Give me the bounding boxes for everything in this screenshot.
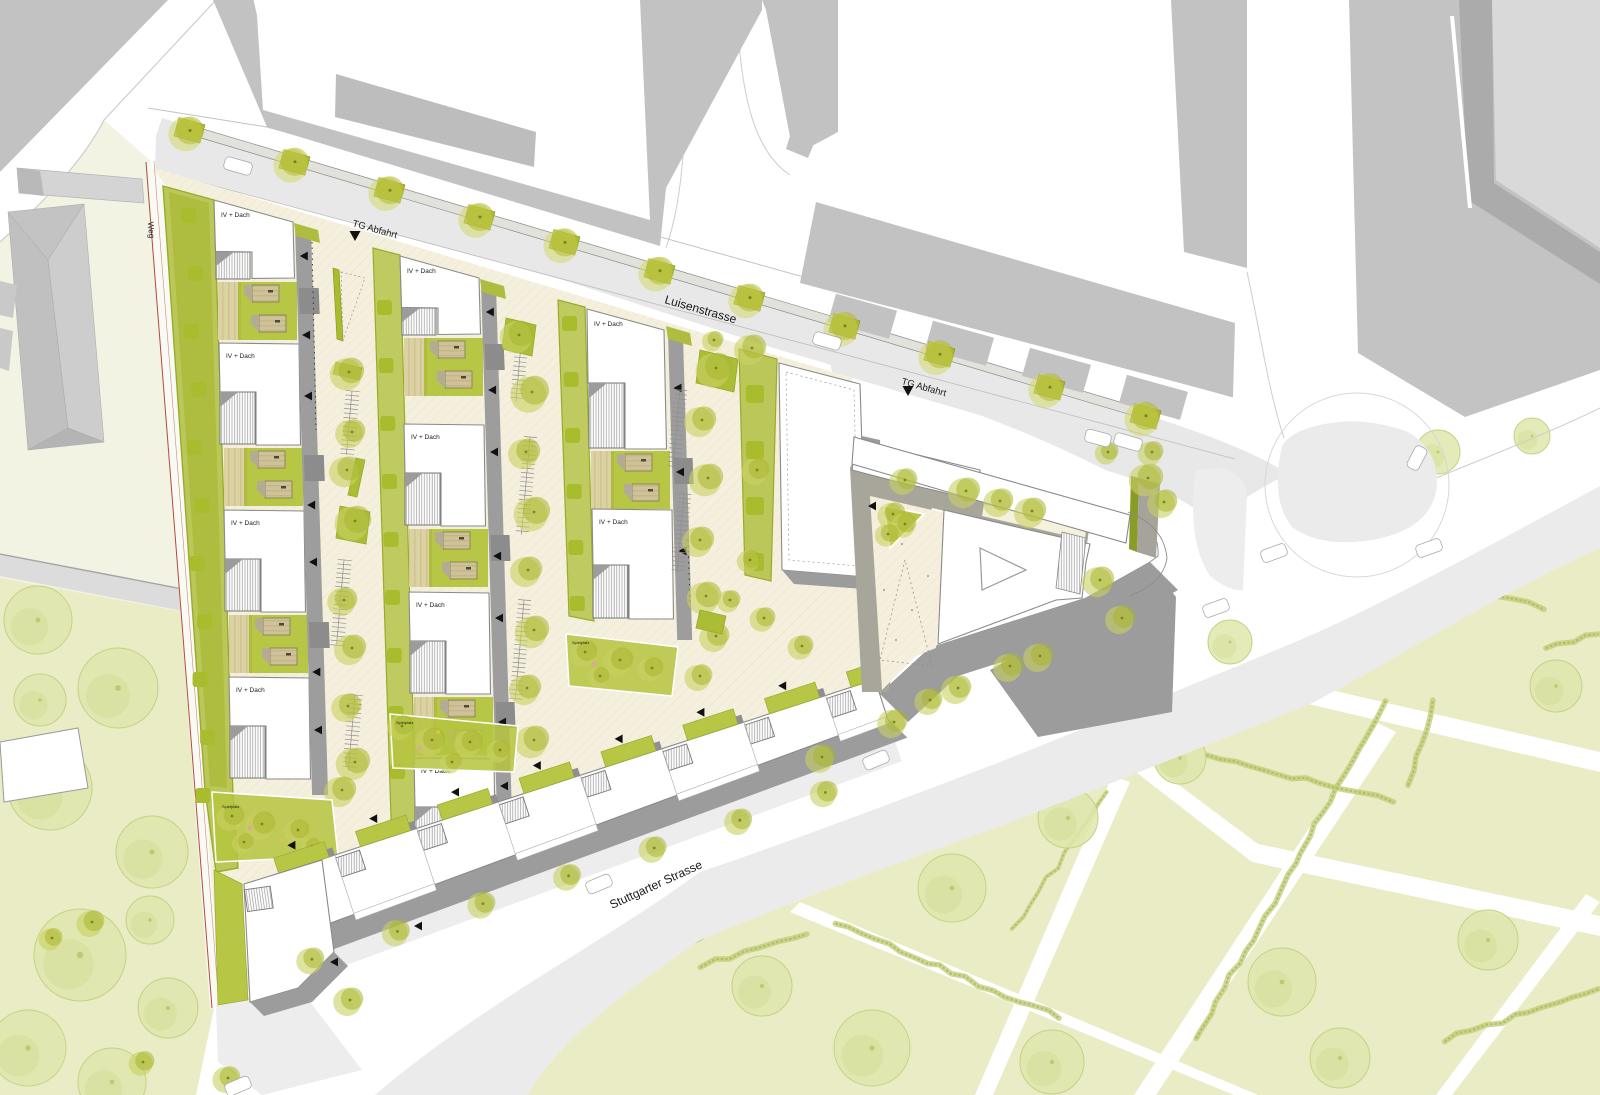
svg-text:IV + Dach: IV + Dach xyxy=(411,434,440,441)
svg-text:Spielplatz: Spielplatz xyxy=(396,720,413,725)
svg-text:IV + Dach: IV + Dach xyxy=(599,519,628,526)
svg-text:Weg: Weg xyxy=(146,222,156,239)
svg-text:IV + Dach: IV + Dach xyxy=(407,268,436,275)
svg-text:IV + Dach: IV + Dach xyxy=(226,353,255,360)
svg-text:IV + Dach: IV + Dach xyxy=(416,602,445,609)
svg-text:IV + Dach: IV + Dach xyxy=(594,321,623,328)
svg-text:Spielplatz: Spielplatz xyxy=(222,804,239,809)
svg-text:IV + Dach: IV + Dach xyxy=(221,212,250,219)
svg-text:Spielplatz: Spielplatz xyxy=(572,640,589,645)
svg-text:IV + Dach: IV + Dach xyxy=(231,520,260,527)
svg-text:IV + Dach: IV + Dach xyxy=(236,687,265,694)
